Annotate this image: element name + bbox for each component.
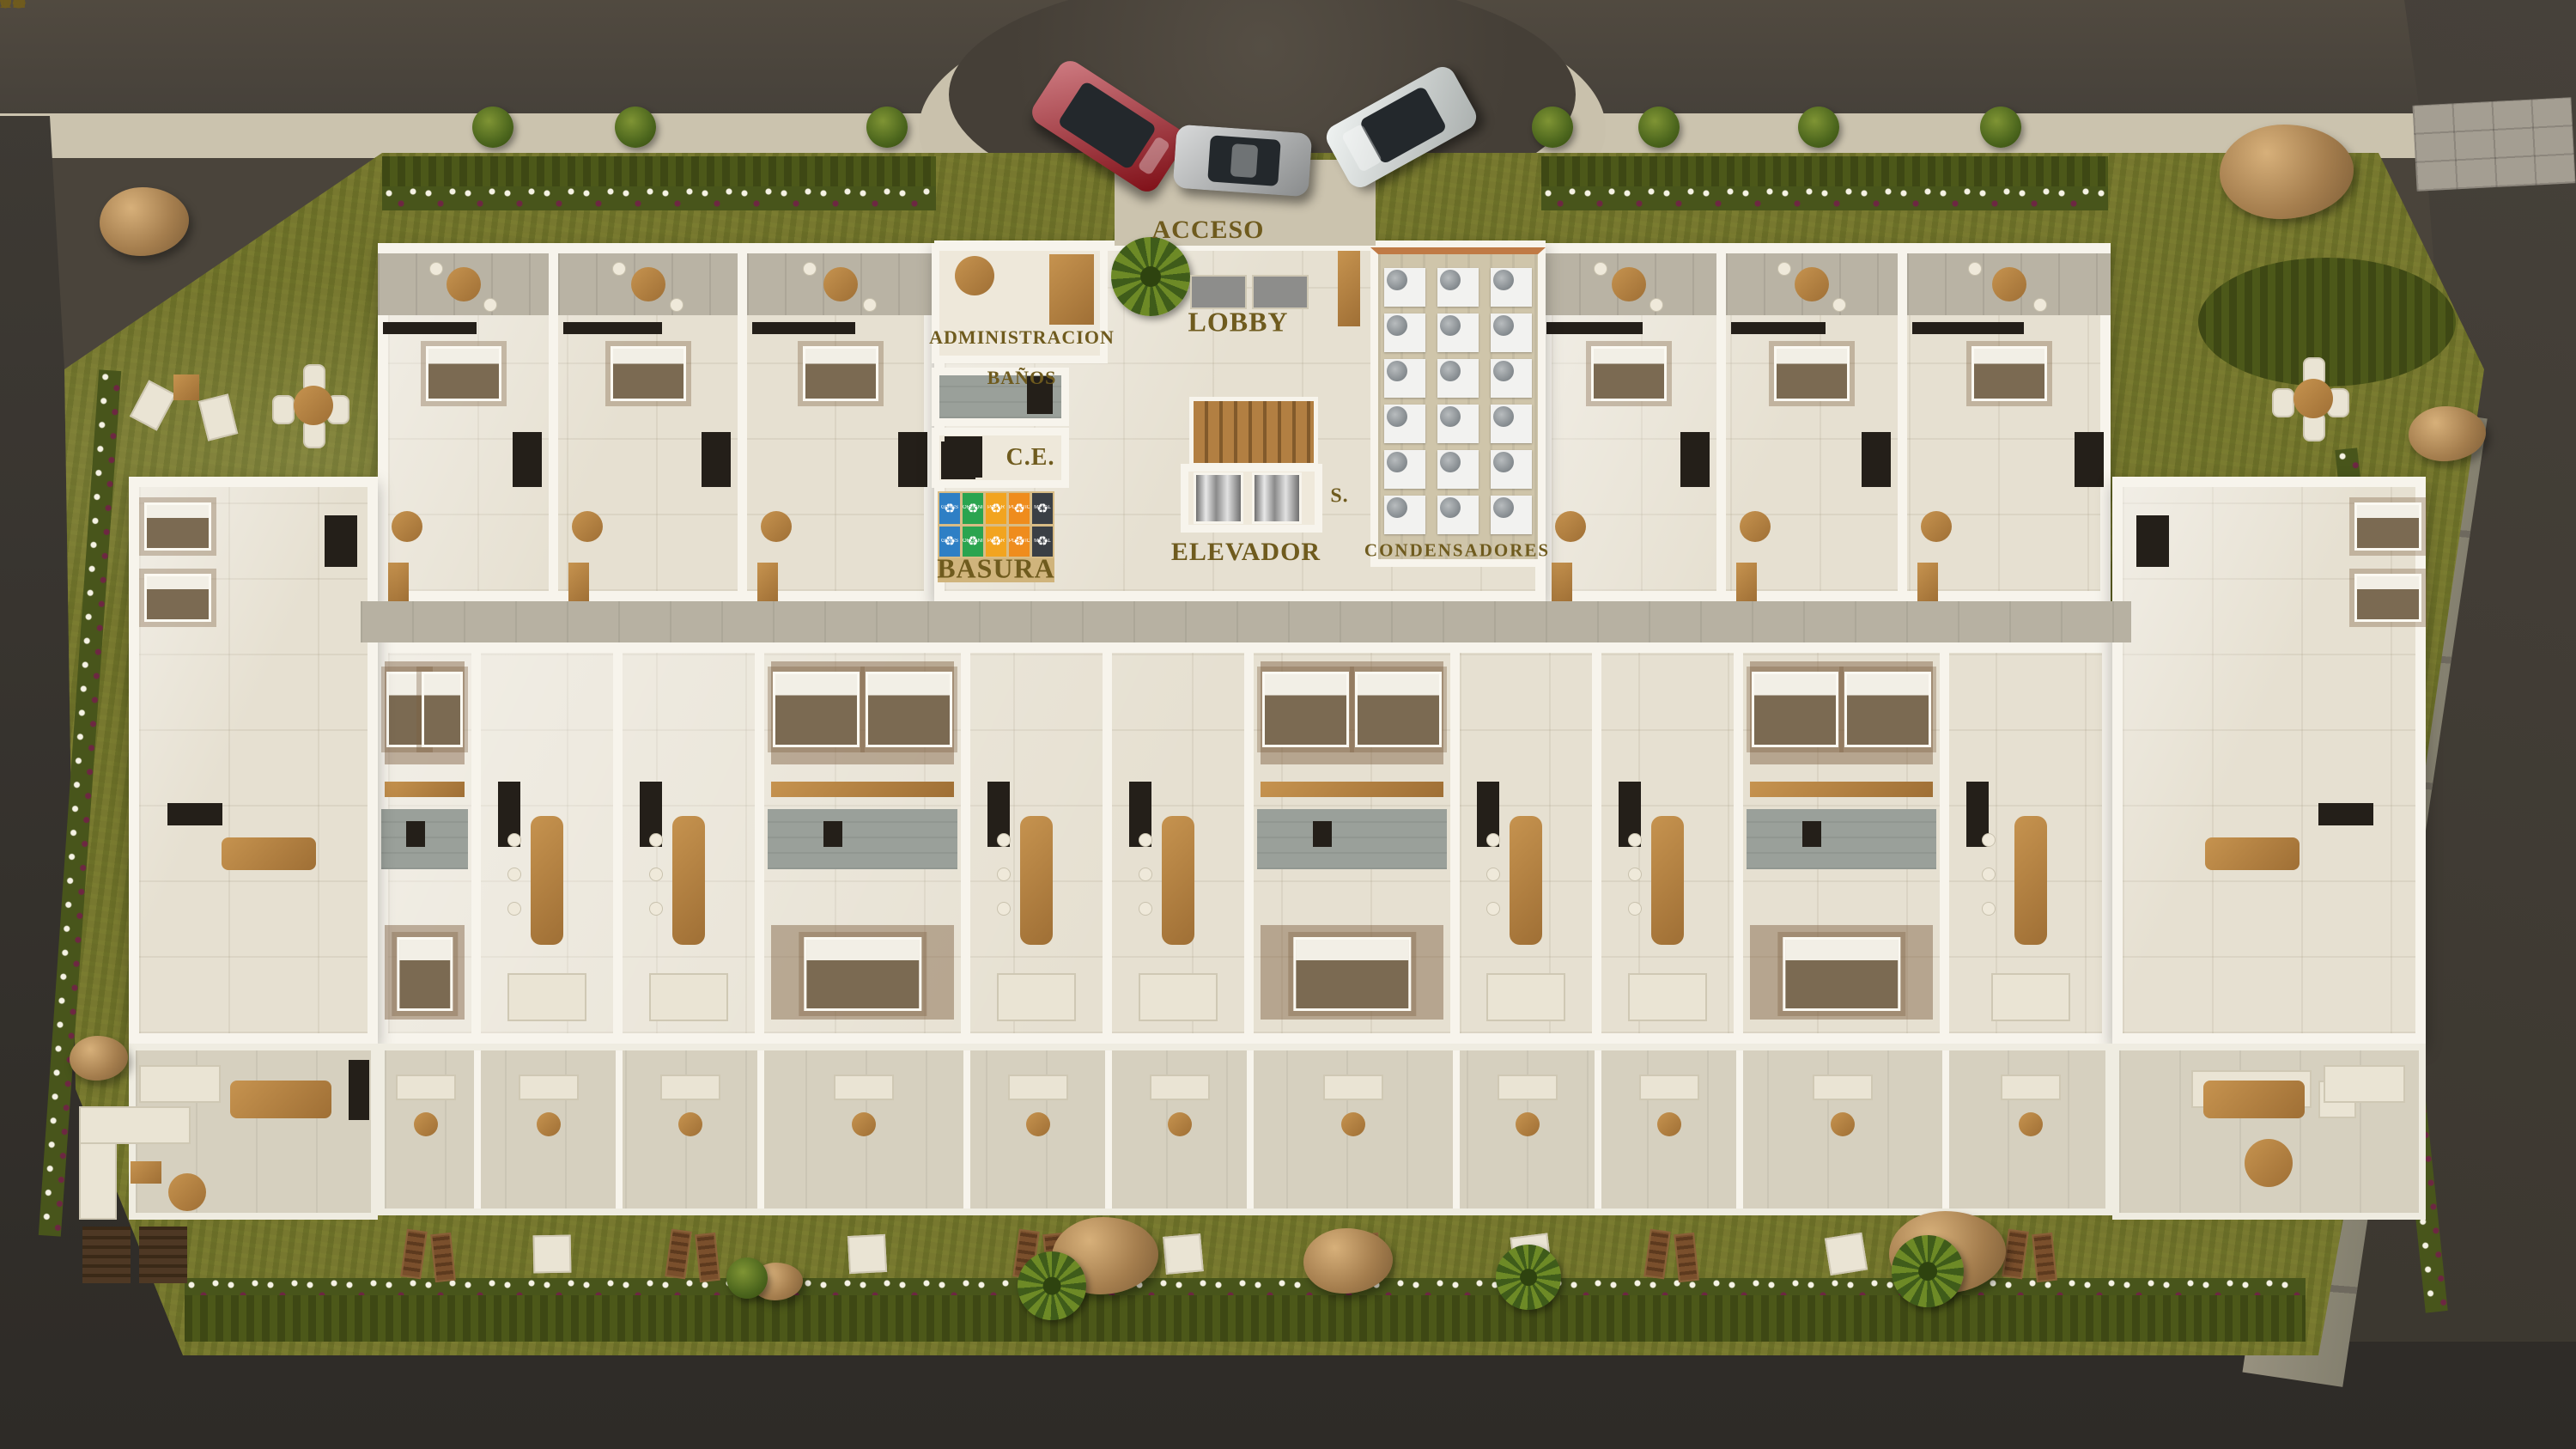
garden-armchair bbox=[1825, 1233, 1868, 1275]
console bbox=[385, 782, 465, 797]
corner-sofa bbox=[79, 1106, 191, 1144]
hedge-top-right bbox=[1541, 156, 2108, 189]
stone-pavers bbox=[2413, 97, 2576, 192]
terrace-bay bbox=[1601, 1050, 1743, 1209]
table bbox=[761, 511, 792, 542]
bin-material-label: PAPER bbox=[987, 539, 1005, 545]
sofa bbox=[1486, 973, 1565, 1021]
bin-material-label: PAPER bbox=[987, 505, 1005, 511]
ac-condenser-unit bbox=[1384, 268, 1425, 307]
garden-chair bbox=[2272, 388, 2294, 417]
bin-material-label: GLASS bbox=[941, 539, 958, 545]
dining-table bbox=[1020, 816, 1053, 945]
kitchen-island bbox=[167, 803, 222, 825]
palm-tree-icon bbox=[1892, 1235, 1964, 1307]
sofa bbox=[997, 973, 1076, 1021]
car-roof bbox=[1230, 143, 1259, 178]
kitchen-counter bbox=[1546, 322, 1643, 334]
dining-chair bbox=[1486, 833, 1500, 847]
corridor bbox=[361, 601, 2131, 642]
dining-table bbox=[672, 816, 705, 945]
patio-table bbox=[823, 267, 858, 301]
bed bbox=[1355, 672, 1442, 747]
bed bbox=[2354, 574, 2421, 622]
bed bbox=[1591, 346, 1667, 401]
garden-armchair bbox=[532, 1235, 571, 1274]
table bbox=[1740, 511, 1771, 542]
terrace-sofa bbox=[1323, 1075, 1383, 1100]
dining-chair bbox=[1982, 902, 1996, 916]
condensadores-label: CONDENSADORES bbox=[1364, 540, 1550, 562]
tree-icon bbox=[726, 1257, 768, 1299]
dining-table bbox=[531, 816, 563, 945]
dining-chair bbox=[507, 833, 521, 847]
planter-box bbox=[82, 1227, 131, 1283]
bed bbox=[803, 346, 878, 401]
tree-icon bbox=[1638, 107, 1680, 148]
ac-condenser-unit bbox=[1437, 314, 1479, 352]
condenser-grid bbox=[1384, 268, 1532, 534]
unit-cell bbox=[1112, 653, 1254, 1033]
terrace-sofa bbox=[1150, 1075, 1210, 1100]
patio-chair bbox=[1832, 298, 1846, 312]
sofa bbox=[1628, 973, 1707, 1021]
dining-chair bbox=[649, 868, 663, 881]
kitchen-counter bbox=[383, 322, 477, 334]
recycle-bin-paper: ♻PAPER bbox=[986, 493, 1006, 524]
tree-icon bbox=[1532, 107, 1573, 148]
terrace-bay bbox=[378, 1050, 481, 1209]
wardrobe bbox=[568, 563, 589, 602]
dining-chair bbox=[997, 833, 1011, 847]
bin-material-label: PLASTIC bbox=[1009, 539, 1030, 545]
bed bbox=[1262, 672, 1349, 747]
patio-chair bbox=[429, 262, 443, 276]
ac-condenser-unit bbox=[1491, 496, 1532, 534]
kitchen-counter bbox=[563, 322, 662, 334]
car-silver-coupe bbox=[1173, 125, 1313, 198]
terrace-table bbox=[537, 1112, 561, 1136]
bathroom bbox=[1680, 432, 1710, 487]
bin-material-label: METAL bbox=[1034, 539, 1051, 545]
patio-chair bbox=[1777, 262, 1791, 276]
bed bbox=[1783, 937, 1900, 1011]
terrace-sofa bbox=[1813, 1075, 1873, 1100]
bed bbox=[1752, 672, 1838, 747]
unit-cell bbox=[764, 653, 970, 1033]
garden-armchair bbox=[848, 1234, 887, 1274]
dining-chair bbox=[1139, 868, 1152, 881]
bin-material-label: PLASTIC bbox=[1009, 505, 1030, 511]
unit-cell bbox=[378, 653, 481, 1033]
bed bbox=[144, 502, 211, 551]
kitchen-counter bbox=[1731, 322, 1826, 334]
unit-cell bbox=[378, 253, 558, 591]
terrace-table bbox=[852, 1112, 876, 1136]
wardrobe bbox=[1736, 563, 1757, 602]
wc-fixture bbox=[406, 821, 425, 847]
patio-chair bbox=[2033, 298, 2047, 312]
garden-table bbox=[2293, 379, 2333, 418]
garden-dining-set bbox=[272, 364, 355, 447]
bathroom-strip bbox=[1257, 809, 1447, 869]
terrace-bay bbox=[1949, 1050, 2112, 1209]
stairs-label: S. bbox=[1330, 485, 1348, 508]
wc-fixture bbox=[823, 821, 842, 847]
elevator-shaft bbox=[1252, 472, 1302, 524]
bathroom bbox=[1862, 432, 1891, 487]
recycling-bins: ♻GLASS♻ORGANIC♻PAPER♻PLASTIC♻METAL♻GLASS… bbox=[938, 491, 1054, 558]
unit-cell bbox=[747, 253, 934, 591]
terrace-sofa bbox=[834, 1075, 894, 1100]
recycle-bin-glass: ♻GLASS bbox=[939, 493, 960, 524]
ac-condenser-unit bbox=[1491, 268, 1532, 307]
bathroom-strip bbox=[768, 809, 957, 869]
tree-icon bbox=[866, 107, 908, 148]
patio-chair bbox=[612, 262, 626, 276]
ac-condenser-unit bbox=[1491, 314, 1532, 352]
bed bbox=[1971, 346, 2047, 401]
terrace-bay bbox=[1460, 1050, 1601, 1209]
ce-electrical-panel bbox=[945, 436, 982, 478]
building-block-units-1110-1112 bbox=[1541, 243, 2111, 601]
sofa bbox=[1139, 973, 1218, 1021]
ac-condenser-unit bbox=[1437, 450, 1479, 489]
sun-lounger bbox=[695, 1233, 720, 1282]
ac-condenser-unit bbox=[1437, 359, 1479, 398]
dining-table bbox=[1162, 816, 1194, 945]
ac-condenser-unit bbox=[1437, 268, 1479, 307]
bathroom bbox=[325, 515, 357, 567]
terrace-sofa bbox=[1639, 1075, 1699, 1100]
bathroom bbox=[702, 432, 731, 487]
terrace-table bbox=[1168, 1112, 1192, 1136]
unit-cell bbox=[1726, 253, 1907, 591]
terrace-table bbox=[1516, 1112, 1540, 1136]
flowerbed-top-left bbox=[382, 186, 936, 210]
bathroom bbox=[2075, 432, 2104, 487]
wardrobe bbox=[757, 563, 778, 602]
terrace-bay bbox=[970, 1050, 1112, 1209]
lobby-sofa bbox=[1252, 275, 1309, 309]
administracion-label: ADMINISTRACION bbox=[929, 326, 1115, 349]
admin-desk bbox=[1049, 254, 1094, 325]
garden-round-table bbox=[168, 1173, 206, 1211]
building-block-units-1102-1108 bbox=[378, 642, 2112, 1044]
terrace-sofa bbox=[519, 1075, 579, 1100]
terrace-strip bbox=[378, 1044, 2112, 1215]
dining-table bbox=[222, 837, 316, 870]
tree-icon bbox=[1798, 107, 1839, 148]
patio-chair bbox=[1968, 262, 1982, 276]
bathroom bbox=[513, 432, 542, 487]
ac-condenser-unit bbox=[1491, 450, 1532, 489]
patio-table bbox=[1992, 267, 2026, 301]
dining-chair bbox=[649, 902, 663, 916]
bed bbox=[144, 574, 211, 622]
admin-table bbox=[955, 256, 994, 295]
terrace-bay bbox=[1254, 1050, 1460, 1209]
bin-material-label: ORGANIC bbox=[963, 539, 983, 545]
garden-round-table bbox=[2245, 1139, 2293, 1187]
grill bbox=[349, 1060, 369, 1120]
terrace-sofa bbox=[1008, 1075, 1068, 1100]
bed bbox=[611, 346, 686, 401]
dining-table bbox=[2205, 837, 2300, 870]
bed bbox=[1844, 672, 1931, 747]
terrace-dining bbox=[2203, 1081, 2305, 1118]
ac-condenser-unit bbox=[1437, 496, 1479, 534]
planter-box bbox=[139, 1227, 187, 1283]
garden-armchair bbox=[1163, 1233, 1204, 1275]
unit-cell bbox=[1254, 653, 1460, 1033]
bed bbox=[2354, 502, 2421, 551]
banos-label: BAÑOS bbox=[987, 367, 1057, 389]
unit-cell bbox=[970, 653, 1112, 1033]
unit-cell bbox=[1460, 653, 1601, 1033]
palm-tree-icon bbox=[1111, 237, 1190, 316]
patio-table bbox=[631, 267, 665, 301]
unit-cell bbox=[1949, 653, 2112, 1033]
console bbox=[1750, 782, 1933, 797]
ac-condenser-unit bbox=[1384, 359, 1425, 398]
tree-icon bbox=[615, 107, 656, 148]
lobby-console bbox=[1338, 251, 1360, 326]
corner-sofa bbox=[79, 1142, 117, 1220]
patio-table bbox=[1612, 267, 1646, 301]
elevator-shaft bbox=[1194, 472, 1243, 524]
rock bbox=[100, 187, 189, 256]
ac-condenser-unit bbox=[1384, 405, 1425, 443]
ac-condenser-unit bbox=[1384, 314, 1425, 352]
elevador-label: ELEVADOR bbox=[1171, 538, 1321, 567]
recycle-bin-plastic: ♻PLASTIC bbox=[1009, 493, 1030, 524]
unit-cell bbox=[1907, 253, 2111, 591]
dining-chair bbox=[1628, 902, 1642, 916]
bed bbox=[1293, 937, 1411, 1011]
bathroom bbox=[2136, 515, 2169, 567]
recycle-bin-organic: ♻ORGANIC bbox=[963, 493, 983, 524]
dining-chair bbox=[507, 902, 521, 916]
unit-number-1115: 1115 bbox=[0, 0, 26, 15]
coffee-table bbox=[131, 1161, 161, 1184]
dining-chair bbox=[997, 902, 1011, 916]
lobby-label: LOBBY bbox=[1188, 307, 1288, 338]
ac-condenser-unit bbox=[1491, 359, 1532, 398]
dining-chair bbox=[649, 833, 663, 847]
sofa bbox=[507, 973, 586, 1021]
unit-cell bbox=[481, 653, 623, 1033]
ac-condenser-unit bbox=[1437, 405, 1479, 443]
lobby-sofa bbox=[1190, 275, 1247, 309]
terrace-sofa bbox=[396, 1075, 456, 1100]
sofa bbox=[649, 973, 728, 1021]
terrace-sofa bbox=[2324, 1065, 2405, 1103]
table bbox=[1921, 511, 1952, 542]
unit-cell bbox=[1601, 653, 1743, 1033]
kitchen-island bbox=[2318, 803, 2373, 825]
acceso-label: ACCESO bbox=[1151, 216, 1264, 245]
bed bbox=[866, 672, 952, 747]
terrace-table bbox=[2019, 1112, 2043, 1136]
terrace-table bbox=[1026, 1112, 1050, 1136]
tree-icon bbox=[472, 107, 513, 148]
console bbox=[771, 782, 954, 797]
terrace-bay bbox=[1112, 1050, 1254, 1209]
dining-chair bbox=[1982, 868, 1996, 881]
wardrobe bbox=[1552, 563, 1572, 602]
dining-chair bbox=[1628, 833, 1642, 847]
ac-condenser-unit bbox=[1491, 405, 1532, 443]
tree-icon bbox=[1980, 107, 2021, 148]
bin-material-label: ORGANIC bbox=[963, 505, 983, 511]
terrace-dining bbox=[230, 1081, 331, 1118]
terrace-table bbox=[1831, 1112, 1855, 1136]
garden-side-table bbox=[173, 374, 199, 400]
recycle-bin-metal: ♻METAL bbox=[1032, 493, 1053, 524]
unit-cell bbox=[558, 253, 747, 591]
bed bbox=[1774, 346, 1850, 401]
terrace-table bbox=[1341, 1112, 1365, 1136]
wardrobe bbox=[1917, 563, 1938, 602]
dining-chair bbox=[997, 868, 1011, 881]
stairs bbox=[1189, 397, 1318, 467]
sun-lounger bbox=[1674, 1233, 1699, 1282]
dining-table bbox=[1510, 816, 1542, 945]
garden-dining-set bbox=[2272, 357, 2354, 440]
dining-chair bbox=[1139, 833, 1152, 847]
terrace-sofa bbox=[139, 1065, 221, 1103]
table bbox=[572, 511, 603, 542]
unit-cell bbox=[1541, 253, 1726, 591]
bathroom-strip bbox=[1747, 809, 1936, 869]
bin-material-label: METAL bbox=[1034, 505, 1051, 511]
flowerbed-top-right bbox=[1541, 186, 2108, 210]
dining-chair bbox=[507, 868, 521, 881]
terrace-table bbox=[1657, 1112, 1681, 1136]
building-block-units-1113-1115 bbox=[378, 243, 934, 601]
table bbox=[392, 511, 422, 542]
terrace-bay bbox=[623, 1050, 764, 1209]
patio-table bbox=[1795, 267, 1829, 301]
patio-chair bbox=[670, 298, 683, 312]
garden-table bbox=[294, 386, 333, 425]
ac-condenser-unit bbox=[1384, 496, 1425, 534]
terrace-sofa bbox=[660, 1075, 720, 1100]
hedge-bottom bbox=[185, 1288, 2306, 1342]
dining-table bbox=[2014, 816, 2047, 945]
unit-cell bbox=[1743, 653, 1949, 1033]
wc-fixture bbox=[1802, 821, 1821, 847]
unit-cell bbox=[623, 653, 764, 1033]
kitchen-counter bbox=[752, 322, 855, 334]
kitchen-counter bbox=[1912, 322, 2024, 334]
terrace-bay bbox=[764, 1050, 970, 1209]
dining-table bbox=[1651, 816, 1684, 945]
palm-tree-icon bbox=[1018, 1251, 1086, 1320]
ac-condenser-unit bbox=[1384, 450, 1425, 489]
sofa bbox=[1991, 973, 2070, 1021]
terrace-sofa bbox=[1498, 1075, 1558, 1100]
console bbox=[1261, 782, 1443, 797]
terrace-sofa bbox=[2001, 1075, 2061, 1100]
ce-label: C.E. bbox=[1006, 444, 1055, 472]
wardrobe bbox=[388, 563, 409, 602]
terrace-table bbox=[678, 1112, 702, 1136]
hedge-top-left bbox=[382, 156, 936, 189]
bed bbox=[773, 672, 860, 747]
dining-chair bbox=[1982, 833, 1996, 847]
bed bbox=[804, 937, 921, 1011]
dining-chair bbox=[1628, 868, 1642, 881]
bed bbox=[426, 346, 501, 401]
basura-label: BASURA bbox=[937, 553, 1055, 585]
bed bbox=[422, 672, 463, 747]
dining-chair bbox=[1139, 902, 1152, 916]
dining-chair bbox=[1486, 868, 1500, 881]
patio-table bbox=[447, 267, 481, 301]
dining-chair bbox=[1486, 902, 1500, 916]
terrace-table bbox=[414, 1112, 438, 1136]
table bbox=[1555, 511, 1586, 542]
bin-material-label: GLASS bbox=[941, 505, 958, 511]
bed bbox=[397, 937, 453, 1011]
palm-tree-icon bbox=[1496, 1245, 1561, 1310]
site-plan: ♻GLASS♻ORGANIC♻PAPER♻PLASTIC♻METAL♻GLASS… bbox=[0, 0, 2576, 1449]
wc-fixture bbox=[1313, 821, 1332, 847]
bathroom bbox=[898, 432, 927, 487]
terrace-bay bbox=[1743, 1050, 1949, 1209]
garden-chair bbox=[272, 395, 295, 424]
terrace-bay bbox=[481, 1050, 623, 1209]
